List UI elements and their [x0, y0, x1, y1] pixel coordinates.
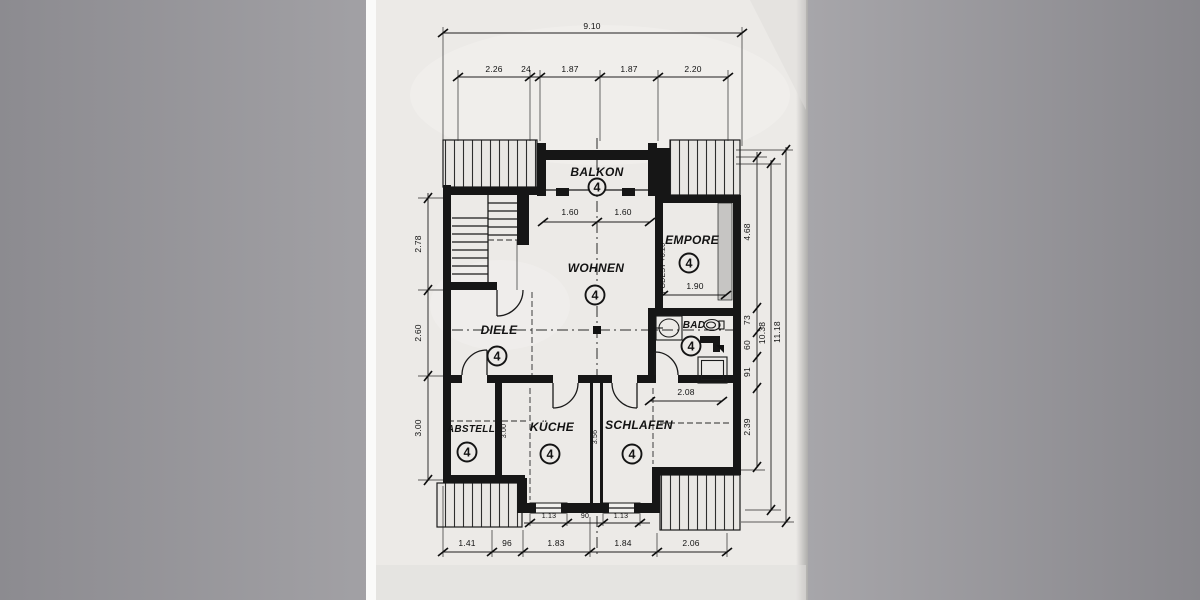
room-number-diele: 4 — [494, 350, 501, 364]
room-label-bad: BAD — [683, 320, 706, 331]
dim-right-3: 60 — [742, 340, 752, 350]
floor-plan-svg: 9.10 2.26 24 1.87 1.87 2.20 2.78 2.60 3.… — [0, 0, 1200, 600]
dim-bottom-3: 1.83 — [547, 538, 564, 548]
window-end-block — [634, 503, 640, 513]
window-end-block — [603, 503, 609, 513]
centerline-node — [593, 326, 601, 334]
room-label-abstell: ABSTELL — [446, 424, 495, 435]
wall-balkon-top — [546, 150, 648, 160]
dim-wall-kueche-left: 3.00 — [501, 424, 508, 438]
wall-stair-bottom — [443, 282, 497, 290]
dim-top-4: 1.87 — [620, 64, 637, 74]
paper-shadow-bottom — [376, 565, 806, 600]
wall-right — [733, 195, 741, 475]
bad-partition-wall — [713, 336, 720, 352]
dim-empore-width: 1.90 — [686, 281, 703, 291]
room-label-kueche: KÜCHE — [530, 419, 575, 434]
window-end-block — [530, 503, 536, 513]
room-number-bad: 4 — [688, 340, 695, 354]
table-surface-left — [0, 0, 372, 600]
wall-balkon-right — [648, 143, 657, 196]
room-number-abstell: 4 — [464, 446, 471, 460]
dim-bad-width: 2.08 — [677, 387, 694, 397]
room-label-balkon: BALKON — [570, 165, 623, 179]
dim-right-total: 11.18 — [772, 321, 782, 343]
dim-left-1: 2.78 — [413, 235, 423, 252]
balkon-sill-block — [556, 188, 569, 196]
roof-hatch-top-left — [443, 140, 537, 187]
wall-pier-right-of-balkon — [657, 148, 670, 195]
wall-corridor — [487, 375, 553, 383]
dim-left-2: 2.60 — [413, 324, 423, 341]
balkon-sill-block — [622, 188, 635, 196]
roof-hatch-bottom-right — [660, 475, 740, 530]
wall-left — [443, 185, 451, 483]
wall-window-pier — [520, 503, 530, 513]
wall-balkon-left — [537, 143, 546, 196]
dim-top-2: 24 — [521, 64, 531, 74]
dim-balkon-1: 1.60 — [561, 207, 578, 217]
window-end-block — [561, 503, 567, 513]
wall-corridor — [637, 375, 655, 383]
dim-bottom-5: 2.06 — [682, 538, 699, 548]
room-number-schlafen: 4 — [629, 448, 636, 462]
podest-note: PODEST +0.20 — [660, 243, 667, 294]
photo-of-floor-plan: 9.10 2.26 24 1.87 1.87 2.20 2.78 2.60 3.… — [0, 0, 1200, 600]
room-number-empore: 4 — [686, 257, 693, 271]
dim-window-1: 1.13 — [542, 513, 556, 520]
dim-right-1: 4.68 — [742, 223, 752, 240]
dim-top-1: 2.26 — [485, 64, 502, 74]
room-label-wohnen: WOHNEN — [568, 261, 624, 275]
dim-right-5: 2.39 — [742, 418, 752, 435]
wall-kueche-schlafen — [600, 383, 603, 503]
room-label-empore: EMPORE — [665, 233, 720, 247]
room-label-schlafen: SCHLAFEN — [605, 418, 673, 432]
table-surface-right — [806, 0, 1200, 600]
wall-window-pier — [567, 503, 603, 513]
dim-right-mid-total: 10.38 — [757, 322, 767, 344]
room-number-kueche: 4 — [547, 448, 554, 462]
room-label-diele: DIELE — [481, 323, 519, 337]
dim-bottom-4: 1.84 — [614, 538, 631, 548]
dim-top-total: 9.10 — [583, 21, 600, 31]
wall-bad-top — [655, 308, 741, 316]
roof-hatch-bottom-left — [437, 483, 522, 527]
dim-right-2: 73 — [742, 315, 752, 325]
room-number-wohnen: 4 — [592, 289, 599, 303]
dim-balkon-2: 1.60 — [614, 207, 631, 217]
dim-top-3: 1.87 — [561, 64, 578, 74]
roof-hatch-top-right — [670, 140, 740, 195]
dim-wall-kueche-right: 3.56 — [592, 430, 599, 444]
wall-stair-right — [517, 187, 529, 245]
wall-abstell-bottom — [443, 475, 525, 483]
empore-low-wall-strip — [718, 203, 732, 300]
dim-top-5: 2.20 — [684, 64, 701, 74]
dim-bottom-2: 96 — [502, 538, 512, 548]
dim-left-3: 3.00 — [413, 419, 423, 436]
room-number-balkon: 4 — [594, 181, 601, 195]
dim-bottom-1: 1.41 — [458, 538, 475, 548]
wall-bottom-right — [652, 467, 741, 475]
wall-corridor — [578, 375, 612, 383]
wall-top-right — [655, 195, 741, 203]
dim-window-2: 1.13 — [614, 513, 628, 520]
dim-window-gap: 90 — [581, 513, 589, 520]
dim-right-4: 91 — [742, 367, 752, 377]
wall-corridor — [451, 375, 462, 383]
